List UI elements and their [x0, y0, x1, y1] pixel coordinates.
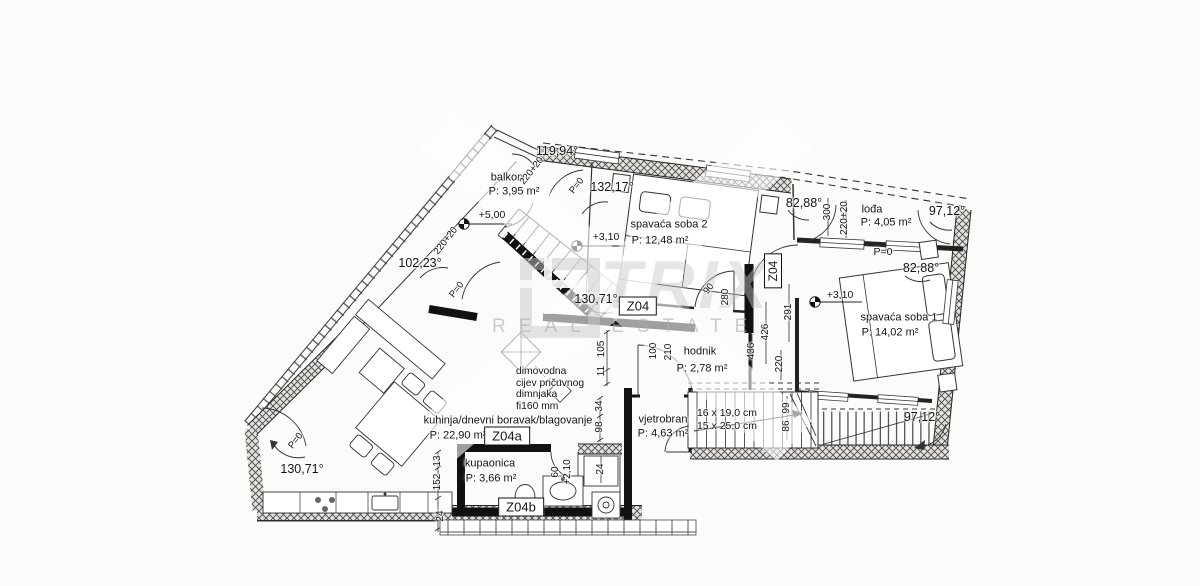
- dim-436: 436: [747, 343, 757, 360]
- room-kuhinja-name: kuhinja/dnevni boravak/blagovanje: [424, 416, 593, 427]
- angle-kitchen-left: 130,71°: [280, 463, 323, 476]
- room-soba1-name: spavaća soba 1: [860, 313, 937, 324]
- floor-plan-page: TRIX REAL ESTATE 119,94° balkon P: 3,95 …: [0, 0, 1200, 586]
- room-loda-name: lođa: [862, 205, 883, 216]
- dim-98: 98: [595, 421, 605, 432]
- room-kuhinja-area: P: 22,90 m²: [430, 431, 487, 442]
- angle-center: 130,71°: [574, 293, 617, 306]
- level-soba2: +3,10: [593, 232, 620, 243]
- dim-426: 426: [761, 324, 771, 341]
- chimney-note-line4: fi160 mm: [516, 402, 558, 412]
- unit-label-main: Z04: [619, 297, 657, 316]
- room-loda-area: P: 4,05 m²: [861, 218, 912, 229]
- dim-291: 291: [784, 304, 794, 321]
- unit-label-kitchen-zone: Z04a: [484, 427, 530, 446]
- dim-105: 105: [597, 341, 607, 358]
- masonry-block-row: [440, 520, 696, 535]
- unit-label-side: Z04: [764, 254, 782, 289]
- dim-60: 60: [551, 466, 561, 477]
- kitchen-counter: [263, 492, 452, 513]
- level-soba1: +3,10: [827, 290, 854, 301]
- room-soba1-area: P: 14,02 m²: [862, 328, 919, 339]
- dim-220-20-a: 220+20: [840, 201, 850, 235]
- dim-13: 13: [433, 455, 443, 466]
- angle-top-apex: 119,94°: [536, 145, 578, 158]
- room-balkon-area: P: 3,95 m²: [489, 187, 540, 198]
- angle-soba1-top: 82,88°: [903, 262, 939, 275]
- angle-soba2-top: 132,17°: [590, 181, 633, 194]
- apex-wall: [494, 130, 538, 157]
- room-vjetrobran-area: P: 4,63 m²: [638, 429, 689, 440]
- chimney-note-line2: cijev pričuvnog: [516, 379, 584, 389]
- dim-11: 11: [597, 366, 607, 376]
- dim-99: 99: [782, 402, 792, 413]
- dim-24-a: 24: [436, 510, 446, 521]
- room-hodnik-name: hodnik: [684, 347, 716, 358]
- dim-152: 152: [433, 474, 443, 491]
- room-soba2-area: P: 12,48 m²: [632, 236, 689, 247]
- angle-soba1-bottom: 97,12°: [904, 411, 940, 424]
- dim-210: 210: [664, 344, 674, 361]
- stairs-spec-line2: 15 x 25,0 cm: [697, 421, 757, 432]
- angle-loda-right: 97,12°: [929, 205, 965, 218]
- room-soba2-name: spavaća soba 2: [630, 220, 707, 231]
- dim-280: 280: [721, 289, 731, 306]
- room-kupaonica-name: kupaonica: [465, 459, 515, 470]
- dim-34: 34: [595, 400, 605, 411]
- room-vjetrobran-name: vjetrobran: [639, 415, 688, 426]
- angle-balkon-left: 102,23°: [398, 257, 441, 270]
- room-kupaonica-area: P: 3,66 m²: [466, 474, 517, 485]
- dim-86: 86: [782, 420, 792, 431]
- stairs-spec-line1: 16 x 19,0 cm: [697, 408, 757, 419]
- room-hodnik-area: P: 2,78 m²: [677, 364, 728, 375]
- chimney-note-line1: dimovodna: [516, 367, 566, 377]
- unit-label-bath-zone: Z04b: [498, 498, 544, 517]
- level-loda: P=0: [874, 247, 893, 258]
- dim-300: 300: [823, 204, 833, 221]
- level-bath-door: +2,10: [563, 459, 573, 484]
- dim-220: 220: [775, 356, 785, 373]
- dim-24-b: 24: [596, 463, 606, 474]
- angle-loda-left: 82,88°: [786, 197, 822, 210]
- level-balkon: +5,00: [479, 210, 506, 221]
- dim-100: 100: [649, 343, 659, 360]
- chimney-note-line3: dimnjaka: [516, 390, 557, 400]
